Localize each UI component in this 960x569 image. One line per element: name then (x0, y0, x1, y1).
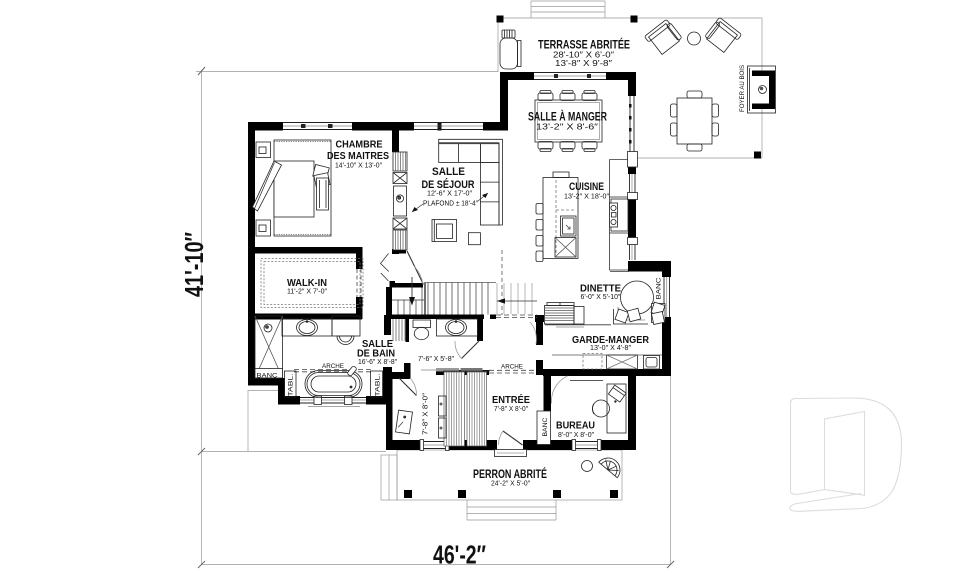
svg-text:11'-2″ X 7'-0″: 11'-2″ X 7'-0″ (287, 287, 327, 296)
svg-text:7'-8″ X 8'-0″: 7'-8″ X 8'-0″ (421, 392, 430, 435)
svg-text:13'-2″ X 18'-0″: 13'-2″ X 18'-0″ (564, 192, 609, 201)
svg-text:PLAFOND ± 18'-4″: PLAFOND ± 18'-4″ (423, 199, 478, 208)
svg-text:BUREAU: BUREAU (556, 420, 595, 432)
svg-text:TABL.: TABL. (288, 373, 295, 396)
svg-text:41'-10″: 41'-10″ (179, 232, 209, 297)
svg-text:BANC: BANC (656, 277, 663, 299)
svg-text:ARCHE: ARCHE (501, 364, 523, 371)
svg-text:SALLE: SALLE (432, 166, 465, 178)
svg-text:BANC: BANC (257, 373, 278, 380)
svg-text:16'-6″ X 8'-8″: 16'-6″ X 8'-8″ (358, 357, 397, 366)
svg-text:BANC: BANC (542, 417, 549, 436)
svg-text:7'-8″ X 8'-0″: 7'-8″ X 8'-0″ (494, 406, 528, 413)
svg-text:ARCHE: ARCHE (322, 363, 344, 370)
svg-text:CHAMBRE: CHAMBRE (336, 139, 383, 151)
svg-text:13'-0″ X 4'-8″: 13'-0″ X 4'-8″ (590, 345, 632, 352)
svg-text:46'-2″: 46'-2″ (433, 540, 486, 569)
svg-text:12'-6″ X 17'-0″: 12'-6″ X 17'-0″ (427, 189, 472, 198)
svg-text:24'-2″ X 5'-0″: 24'-2″ X 5'-0″ (491, 479, 530, 488)
svg-text:13'-8″ X 9'-8″: 13'-8″ X 9'-8″ (555, 59, 612, 68)
svg-text:6'-0″ X 5'-10″: 6'-0″ X 5'-10″ (581, 294, 622, 301)
svg-text:13'-2″ X 8'-6″: 13'-2″ X 8'-6″ (536, 123, 598, 132)
svg-text:TERRASSE ABRITÉE: TERRASSE ABRITÉE (538, 37, 630, 52)
svg-text:TABL.: TABL. (375, 373, 382, 396)
svg-text:14'-10″ X 13'-0″: 14'-10″ X 13'-0″ (335, 161, 382, 170)
svg-text:8'-0″ X 8'-0″: 8'-0″ X 8'-0″ (558, 432, 595, 439)
svg-text:FOYER AU BOIS: FOYER AU BOIS (739, 65, 746, 112)
svg-text:7'-6″ X 5'-8″: 7'-6″ X 5'-8″ (418, 354, 454, 363)
svg-text:ENTRÉE: ENTRÉE (492, 393, 530, 406)
svg-text:DINETTE: DINETTE (580, 283, 621, 295)
